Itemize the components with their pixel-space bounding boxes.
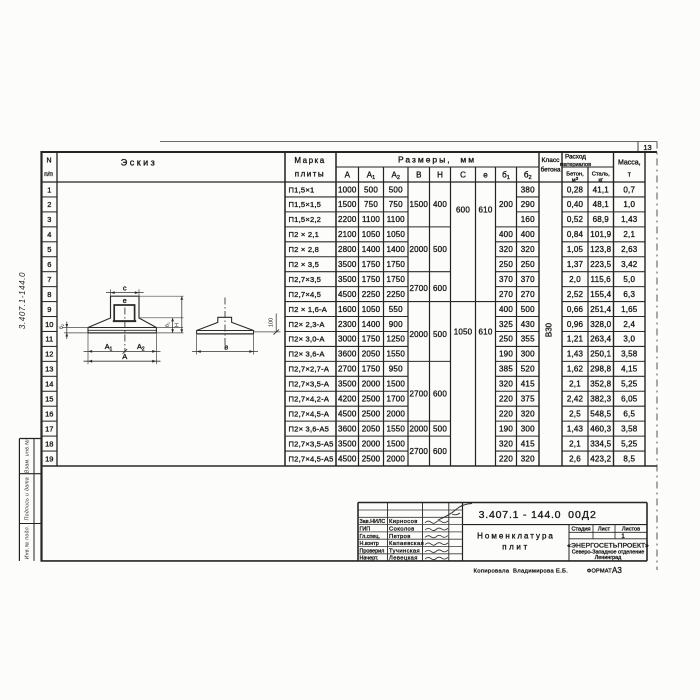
svg-text:1050: 1050 — [362, 230, 381, 239]
svg-text:А: А — [122, 352, 127, 361]
svg-text:520: 520 — [521, 365, 535, 374]
svg-text:2,1: 2,1 — [623, 230, 635, 239]
svg-text:380: 380 — [521, 185, 535, 194]
svg-text:352,8: 352,8 — [590, 380, 611, 389]
svg-text:1500: 1500 — [338, 200, 357, 209]
svg-text:1050: 1050 — [386, 230, 405, 239]
svg-text:0,28: 0,28 — [567, 185, 584, 194]
svg-text:320: 320 — [499, 439, 513, 448]
svg-text:13: 13 — [643, 143, 651, 152]
svg-text:1,21: 1,21 — [567, 335, 584, 344]
svg-text:2050: 2050 — [362, 424, 381, 433]
svg-text:320: 320 — [499, 245, 513, 254]
svg-text:5,25: 5,25 — [621, 439, 638, 448]
svg-text:160: 160 — [521, 215, 535, 224]
svg-text:П2× 3,0-А: П2× 3,0-А — [289, 335, 326, 344]
svg-text:плит: плит — [502, 543, 530, 552]
svg-text:298,8: 298,8 — [590, 365, 611, 374]
svg-text:2100: 2100 — [338, 230, 357, 239]
svg-text:500: 500 — [389, 185, 403, 194]
svg-text:5: 5 — [47, 245, 51, 254]
svg-text:2500: 2500 — [362, 395, 381, 404]
svg-text:П2,7×3,5: П2,7×3,5 — [289, 275, 322, 284]
svg-text:400: 400 — [499, 305, 513, 314]
svg-text:385: 385 — [499, 365, 513, 374]
svg-text:600: 600 — [433, 284, 447, 293]
svg-text:Н: Н — [437, 171, 443, 180]
svg-text:2: 2 — [47, 200, 51, 209]
svg-text:41,1: 41,1 — [593, 185, 610, 194]
svg-text:15: 15 — [45, 395, 53, 404]
svg-text:2250: 2250 — [386, 290, 405, 299]
svg-text:1500: 1500 — [386, 380, 405, 389]
svg-text:П2,7×4,5-А5: П2,7×4,5-А5 — [289, 454, 334, 463]
svg-text:220: 220 — [499, 395, 513, 404]
svg-text:750: 750 — [389, 200, 403, 209]
svg-text:Номенклатура: Номенклатура — [477, 532, 555, 541]
svg-text:Левецкая: Левецкая — [389, 556, 418, 562]
svg-text:2200: 2200 — [338, 215, 357, 224]
svg-text:2500: 2500 — [362, 454, 381, 463]
svg-text:5,0: 5,0 — [623, 275, 635, 284]
svg-text:1700: 1700 — [386, 395, 405, 404]
svg-text:N: N — [46, 158, 51, 165]
svg-text:1100: 1100 — [362, 215, 380, 224]
svg-text:4200: 4200 — [338, 395, 357, 404]
svg-text:2700: 2700 — [338, 365, 357, 374]
svg-text:Тучинская: Тучинская — [389, 548, 420, 554]
svg-text:А: А — [345, 171, 351, 180]
svg-text:1750: 1750 — [386, 275, 405, 284]
svg-text:1550: 1550 — [386, 424, 405, 433]
svg-text:2,52: 2,52 — [567, 290, 584, 299]
svg-text:2250: 2250 — [362, 290, 381, 299]
svg-text:3500: 3500 — [338, 275, 357, 284]
svg-text:1000: 1000 — [338, 185, 357, 194]
svg-text:263,4: 263,4 — [590, 335, 611, 344]
svg-text:423,2: 423,2 — [590, 454, 611, 463]
svg-text:п/п: п/п — [44, 171, 53, 178]
svg-text:2050: 2050 — [362, 350, 381, 359]
svg-text:610: 610 — [479, 328, 493, 337]
svg-text:6,3: 6,3 — [623, 290, 635, 299]
svg-text:1250: 1250 — [386, 335, 405, 344]
svg-text:500: 500 — [521, 305, 535, 314]
svg-text:1,43: 1,43 — [567, 424, 584, 433]
svg-text:П1,5×1: П1,5×1 — [289, 185, 315, 194]
svg-text:900: 900 — [389, 320, 403, 329]
svg-text:2,0: 2,0 — [569, 275, 581, 284]
svg-text:3000: 3000 — [338, 335, 357, 344]
svg-text:Гл.спец.: Гл.спец. — [360, 534, 380, 540]
svg-text:115,6: 115,6 — [591, 275, 612, 284]
svg-text:0,52: 0,52 — [567, 215, 584, 224]
svg-text:Взам. инв.№: Взам. инв.№ — [25, 439, 31, 473]
svg-text:1,43: 1,43 — [621, 215, 638, 224]
svg-text:190: 190 — [499, 424, 513, 433]
svg-text:101,9: 101,9 — [590, 230, 611, 239]
svg-text:плиты: плиты — [295, 170, 325, 179]
svg-text:7: 7 — [47, 275, 51, 284]
svg-text:2,1: 2,1 — [569, 380, 581, 389]
svg-text:П2,7×4,5: П2,7×4,5 — [289, 290, 322, 299]
svg-text:Листов: Листов — [622, 526, 640, 532]
svg-text:600: 600 — [433, 447, 447, 456]
svg-text:Подпись и дата: Подпись и дата — [25, 477, 31, 520]
svg-text:500: 500 — [433, 330, 447, 339]
svg-text:950: 950 — [389, 365, 403, 374]
svg-text:1,05: 1,05 — [567, 245, 584, 254]
svg-text:320: 320 — [521, 409, 535, 418]
svg-text:Эскиз: Эскиз — [121, 158, 158, 168]
svg-text:Лист: Лист — [598, 526, 611, 532]
svg-text:бетона: бетона — [541, 167, 561, 174]
svg-text:1750: 1750 — [362, 365, 381, 374]
svg-text:1: 1 — [47, 185, 51, 194]
svg-text:П2,7×2,7-А: П2,7×2,7-А — [289, 365, 330, 374]
svg-text:3,58: 3,58 — [621, 350, 638, 359]
svg-text:1,43: 1,43 — [567, 350, 584, 359]
svg-text:2,63: 2,63 — [621, 245, 638, 254]
svg-text:1400: 1400 — [386, 245, 405, 254]
svg-text:Размеры, мм: Размеры, мм — [398, 155, 476, 165]
svg-text:1050: 1050 — [362, 305, 381, 314]
svg-text:2700: 2700 — [409, 389, 428, 398]
svg-text:155,4: 155,4 — [590, 290, 611, 299]
svg-text:2700: 2700 — [409, 447, 428, 456]
svg-text:Стадия: Стадия — [571, 526, 590, 532]
svg-text:300: 300 — [521, 350, 535, 359]
svg-text:3.407.1-144.0: 3.407.1-144.0 — [18, 272, 27, 329]
svg-text:200: 200 — [499, 200, 513, 209]
svg-text:328,0: 328,0 — [590, 320, 611, 329]
svg-text:Н.контр: Н.контр — [360, 541, 379, 547]
svg-text:2700: 2700 — [409, 284, 428, 293]
svg-text:2,6: 2,6 — [569, 454, 581, 463]
svg-text:4500: 4500 — [338, 409, 357, 418]
svg-text:Петров: Петров — [389, 534, 411, 540]
svg-text:Марка: Марка — [294, 156, 325, 165]
svg-text:5,25: 5,25 — [621, 380, 638, 389]
svg-text:18: 18 — [45, 439, 53, 448]
svg-text:«ЭНЕРГОСЕТЬПРОЕКТ»: «ЭНЕРГОСЕТЬПРОЕКТ» — [567, 542, 649, 549]
svg-text:2000: 2000 — [386, 409, 405, 418]
svg-text:П2,7×3,5-А5: П2,7×3,5-А5 — [289, 439, 334, 448]
svg-text:Проверил: Проверил — [360, 548, 385, 554]
svg-text:223,5: 223,5 — [590, 260, 611, 269]
svg-text:1100: 1100 — [387, 215, 405, 224]
svg-text:0,84: 0,84 — [567, 230, 584, 239]
svg-text:270: 270 — [521, 290, 535, 299]
svg-text:1550: 1550 — [386, 350, 405, 359]
svg-text:100: 100 — [268, 318, 274, 327]
svg-text:кг: кг — [598, 177, 603, 183]
svg-text:1: 1 — [621, 533, 625, 540]
svg-text:270: 270 — [499, 290, 513, 299]
svg-text:600: 600 — [433, 389, 447, 398]
svg-text:В30: В30 — [545, 322, 554, 337]
svg-text:1750: 1750 — [362, 260, 381, 269]
svg-text:4,15: 4,15 — [621, 365, 638, 374]
svg-text:8: 8 — [47, 290, 51, 299]
svg-text:А3: А3 — [612, 566, 622, 575]
svg-text:500: 500 — [364, 185, 378, 194]
svg-text:3600: 3600 — [338, 424, 357, 433]
svg-text:1,62: 1,62 — [567, 365, 584, 374]
svg-text:П2× 3,6-А5: П2× 3,6-А5 — [289, 424, 330, 433]
svg-text:0,66: 0,66 — [567, 305, 584, 314]
svg-text:00Д2: 00Д2 — [568, 509, 597, 521]
svg-text:10: 10 — [45, 320, 53, 329]
svg-text:3500: 3500 — [338, 380, 357, 389]
svg-text:400: 400 — [433, 200, 447, 209]
svg-text:500: 500 — [433, 425, 447, 434]
svg-text:П2 × 2,8: П2 × 2,8 — [289, 245, 320, 254]
svg-text:320: 320 — [499, 380, 513, 389]
svg-text:290: 290 — [521, 200, 535, 209]
svg-text:2000: 2000 — [386, 454, 405, 463]
svg-text:4: 4 — [47, 230, 51, 239]
svg-text:17: 17 — [45, 424, 53, 433]
svg-text:Н: Н — [174, 323, 180, 327]
svg-text:Ленинград: Ленинград — [595, 555, 622, 561]
svg-text:П2 × 3,5: П2 × 3,5 — [289, 260, 320, 269]
svg-text:Владимирова Е.Б.: Владимирова Е.Б. — [513, 568, 568, 574]
svg-text:П1,5×1,5: П1,5×1,5 — [289, 200, 322, 209]
svg-text:2000: 2000 — [362, 439, 381, 448]
svg-text:16: 16 — [45, 409, 53, 418]
svg-text:320: 320 — [521, 454, 535, 463]
svg-text:13: 13 — [45, 365, 53, 374]
svg-text:370: 370 — [499, 275, 513, 284]
svg-text:3: 3 — [47, 215, 51, 224]
svg-text:251,4: 251,4 — [590, 305, 611, 314]
svg-text:300: 300 — [521, 424, 535, 433]
svg-text:250: 250 — [499, 335, 513, 344]
svg-text:П2× 2,3-А: П2× 2,3-А — [289, 320, 326, 329]
svg-text:П2,7×4,5-А: П2,7×4,5-А — [289, 409, 330, 418]
svg-text:460,3: 460,3 — [590, 424, 611, 433]
svg-text:610: 610 — [479, 206, 493, 215]
svg-text:2800: 2800 — [338, 245, 357, 254]
svg-text:3,58: 3,58 — [621, 424, 638, 433]
svg-text:2,5: 2,5 — [569, 409, 581, 418]
svg-text:2300: 2300 — [338, 320, 357, 329]
svg-text:6: 6 — [47, 260, 51, 269]
svg-text:П1,5×2,2: П1,5×2,2 — [289, 215, 322, 224]
svg-text:2,4: 2,4 — [623, 320, 635, 329]
svg-text:Кирносов: Кирносов — [389, 519, 418, 525]
svg-text:9: 9 — [47, 305, 51, 314]
svg-text:0,96: 0,96 — [567, 320, 584, 329]
svg-text:400: 400 — [521, 230, 535, 239]
svg-text:355: 355 — [521, 335, 535, 344]
svg-text:1750: 1750 — [386, 260, 405, 269]
svg-text:1400: 1400 — [362, 320, 381, 329]
svg-text:4500: 4500 — [338, 454, 357, 463]
svg-text:250: 250 — [499, 260, 513, 269]
svg-text:3,0: 3,0 — [623, 335, 635, 344]
svg-text:1400: 1400 — [362, 245, 381, 254]
svg-text:Начерт.: Начерт. — [360, 556, 379, 562]
svg-text:325: 325 — [499, 320, 513, 329]
svg-text:С: С — [460, 171, 466, 180]
svg-text:2000: 2000 — [362, 380, 381, 389]
svg-text:430: 430 — [521, 320, 535, 329]
svg-text:382,3: 382,3 — [590, 395, 611, 404]
svg-text:1,37: 1,37 — [567, 260, 584, 269]
svg-text:1500: 1500 — [386, 439, 405, 448]
svg-text:2000: 2000 — [409, 330, 428, 339]
svg-text:11: 11 — [45, 335, 53, 344]
svg-text:2000: 2000 — [409, 245, 428, 254]
svg-text:материалов: материалов — [560, 162, 591, 168]
svg-text:2000: 2000 — [409, 425, 428, 434]
svg-text:В: В — [416, 171, 421, 180]
svg-text:2500: 2500 — [362, 409, 381, 418]
svg-text:250,1: 250,1 — [590, 350, 611, 359]
svg-text:Расход: Расход — [565, 154, 586, 161]
svg-text:375: 375 — [521, 395, 535, 404]
svg-text:68,9: 68,9 — [593, 215, 610, 224]
svg-text:3,42: 3,42 — [621, 260, 638, 269]
svg-text:548,5: 548,5 — [590, 409, 611, 418]
svg-text:Зав.НИЛС: Зав.НИЛС — [360, 519, 386, 525]
svg-text:Масса,: Масса, — [618, 160, 641, 167]
svg-text:0,40: 0,40 — [567, 200, 584, 209]
svg-text:1500: 1500 — [409, 200, 428, 209]
svg-text:ФОРМАТ: ФОРМАТ — [587, 568, 612, 574]
svg-text:220: 220 — [499, 409, 513, 418]
svg-text:415: 415 — [521, 380, 535, 389]
svg-text:550: 550 — [389, 305, 403, 314]
svg-text:е: е — [123, 298, 127, 305]
svg-text:1750: 1750 — [362, 275, 381, 284]
svg-text:ГИП: ГИП — [360, 527, 371, 533]
svg-text:Инв.№ подл.: Инв.№ подл. — [25, 525, 31, 559]
svg-text:19: 19 — [45, 454, 53, 463]
svg-text:П2 × 1,6-А: П2 × 1,6-А — [289, 305, 328, 314]
svg-text:1750: 1750 — [362, 335, 381, 344]
svg-text:с: с — [123, 285, 127, 292]
svg-text:8,5: 8,5 — [623, 454, 635, 463]
svg-text:3500: 3500 — [338, 439, 357, 448]
svg-text:3600: 3600 — [338, 350, 357, 359]
svg-text:1050: 1050 — [454, 328, 473, 337]
svg-text:1,65: 1,65 — [621, 305, 638, 314]
svg-text:1,0: 1,0 — [623, 200, 635, 209]
svg-text:370: 370 — [521, 275, 535, 284]
svg-text:1600: 1600 — [338, 305, 357, 314]
svg-text:14: 14 — [45, 380, 53, 389]
svg-text:4500: 4500 — [338, 290, 357, 299]
svg-text:0,7: 0,7 — [623, 185, 635, 194]
svg-text:е: е — [483, 171, 488, 180]
svg-text:П2,7×4,2-А: П2,7×4,2-А — [289, 395, 330, 404]
svg-text:2,1: 2,1 — [569, 439, 581, 448]
svg-text:190: 190 — [499, 350, 513, 359]
svg-text:2,42: 2,42 — [567, 395, 584, 404]
svg-text:48,1: 48,1 — [593, 200, 610, 209]
svg-text:334,5: 334,5 — [590, 439, 611, 448]
svg-text:П2× 3,6-А: П2× 3,6-А — [289, 350, 326, 359]
svg-text:П2,7×3,5-А: П2,7×3,5-А — [289, 380, 330, 389]
svg-text:Соколов: Соколов — [389, 527, 415, 533]
svg-text:3.407.1 - 144.0: 3.407.1 - 144.0 — [479, 509, 562, 521]
svg-text:6,5: 6,5 — [623, 409, 635, 418]
svg-text:3500: 3500 — [338, 260, 357, 269]
svg-text:П2 × 2,1: П2 × 2,1 — [289, 230, 320, 239]
svg-text:320: 320 — [521, 245, 535, 254]
svg-text:415: 415 — [521, 439, 535, 448]
svg-text:250: 250 — [521, 260, 535, 269]
svg-text:12: 12 — [45, 350, 53, 359]
svg-text:Капаевская: Капаевская — [389, 541, 424, 547]
svg-text:123,8: 123,8 — [590, 245, 611, 254]
svg-text:750: 750 — [364, 200, 378, 209]
svg-text:Копировала: Копировала — [474, 568, 510, 574]
svg-text:6,05: 6,05 — [621, 395, 638, 404]
svg-text:400: 400 — [499, 230, 513, 239]
svg-text:600: 600 — [456, 206, 470, 215]
svg-text:500: 500 — [433, 245, 447, 254]
svg-text:в: в — [224, 342, 228, 351]
svg-text:Класс: Класс — [542, 157, 561, 164]
svg-text:220: 220 — [499, 454, 513, 463]
